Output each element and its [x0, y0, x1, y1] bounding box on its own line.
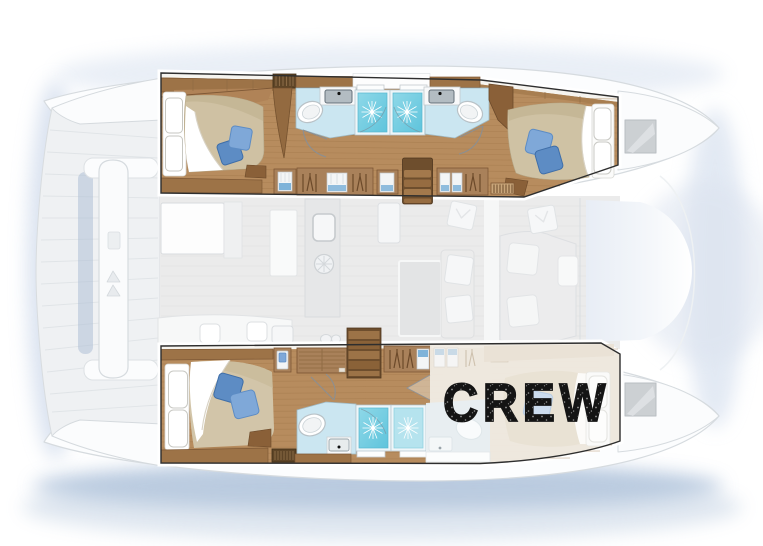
svg-text:CREW: CREW: [443, 373, 610, 433]
